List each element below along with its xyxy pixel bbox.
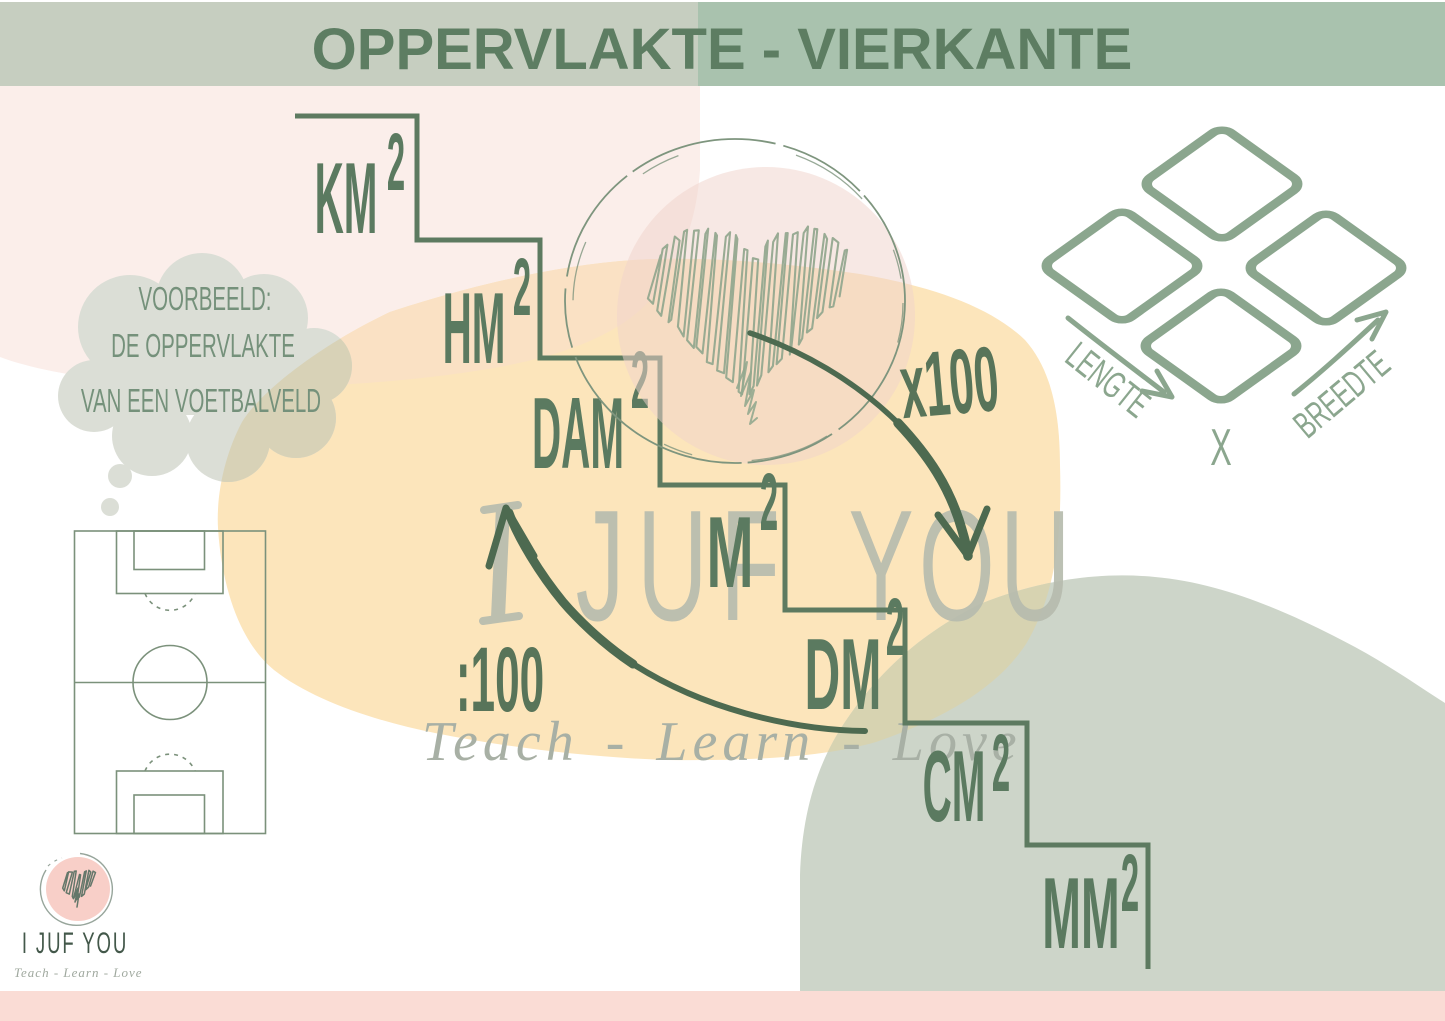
svg-text:CM: CM: [923, 730, 986, 843]
svg-text:X: X: [1210, 419, 1232, 477]
svg-text:YOU: YOU: [848, 477, 1075, 654]
svg-text:DM: DM: [805, 618, 882, 731]
svg-text:MM: MM: [1042, 857, 1119, 970]
svg-text:HM: HM: [443, 272, 506, 385]
svg-text::100: :100: [456, 629, 544, 731]
svg-text:M: M: [706, 497, 753, 609]
svg-text:2: 2: [992, 717, 1010, 809]
svg-text:VAN EEN VOETBALVELD: VAN EEN VOETBALVELD: [81, 382, 321, 419]
svg-text:VOORBEELD:: VOORBEELD:: [139, 280, 272, 317]
svg-text:2: 2: [387, 116, 405, 208]
svg-text:2: 2: [1121, 837, 1139, 929]
svg-text:DAM: DAM: [532, 377, 624, 490]
svg-text:DE OPPERVLAKTE: DE OPPERVLAKTE: [111, 327, 295, 364]
svg-text:2: 2: [886, 581, 904, 673]
svg-text:Teach - Learn - Love: Teach - Learn - Love: [14, 965, 143, 980]
svg-text:2: 2: [760, 456, 778, 548]
svg-text:OPPERVLAKTE - VIERKANTE: OPPERVLAKTE - VIERKANTE: [312, 17, 1133, 82]
svg-text:x100: x100: [896, 328, 1003, 438]
svg-text:2: 2: [513, 241, 531, 333]
svg-text:I JUF YOU: I JUF YOU: [22, 927, 128, 961]
svg-text:KM: KM: [315, 142, 378, 255]
